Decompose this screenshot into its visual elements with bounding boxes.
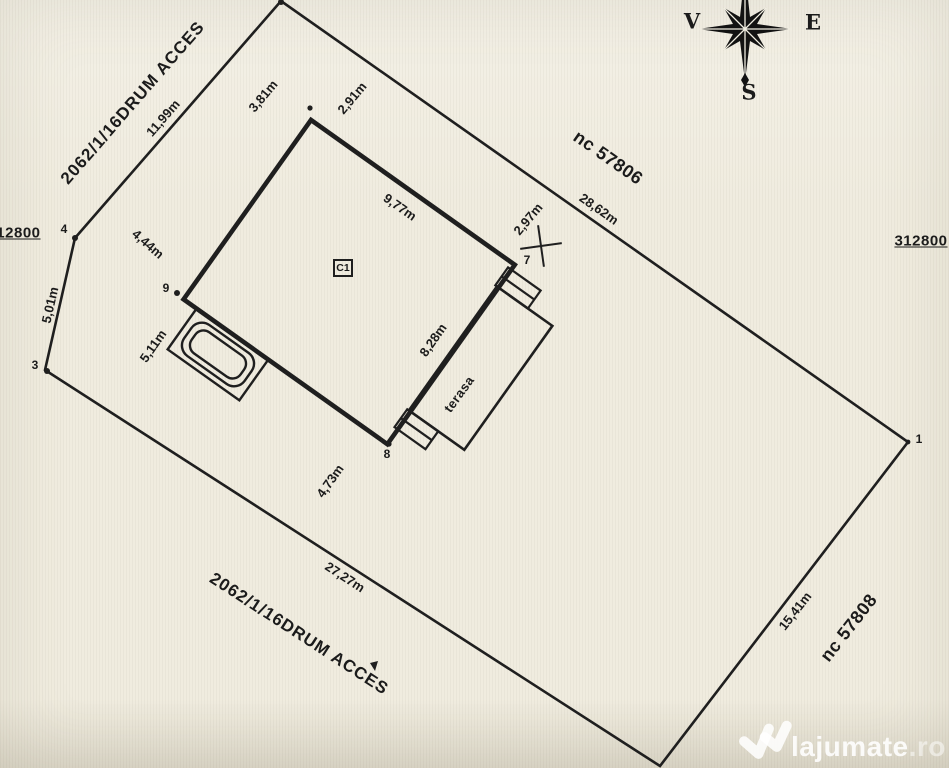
vertex-label-4: 4 xyxy=(61,222,68,236)
vertex-label-7: 7 xyxy=(524,253,531,267)
pool-stairs xyxy=(168,309,269,401)
steps-upper xyxy=(495,267,540,308)
watermark-brand: lajumate xyxy=(791,731,909,762)
compass-south-label: S xyxy=(741,80,756,105)
cadastral-plan: 2062/1/16DRUM ACCES 11,99m 3,81m 2,91m n… xyxy=(0,0,949,768)
grid-coordinate-left: 312800 xyxy=(0,225,41,242)
building-group xyxy=(155,120,569,523)
building-label: C1 xyxy=(336,262,349,274)
steps-lower xyxy=(395,409,439,449)
vertex-label-1: 1 xyxy=(916,432,923,446)
compass-east-label: E xyxy=(805,10,821,35)
vertex-label-9: 9 xyxy=(163,281,170,295)
vertex-label-8: 8 xyxy=(384,447,391,461)
compass-west-label: V xyxy=(684,9,700,34)
watermark-logo-icon xyxy=(743,726,789,755)
watermark-tld: .ro xyxy=(909,731,946,762)
compass-rose-icon xyxy=(698,0,792,87)
watermark: lajumate.ro xyxy=(791,731,946,763)
grid-coordinate-right: 312800 xyxy=(894,233,947,250)
vertex-label-3: 3 xyxy=(32,358,39,372)
